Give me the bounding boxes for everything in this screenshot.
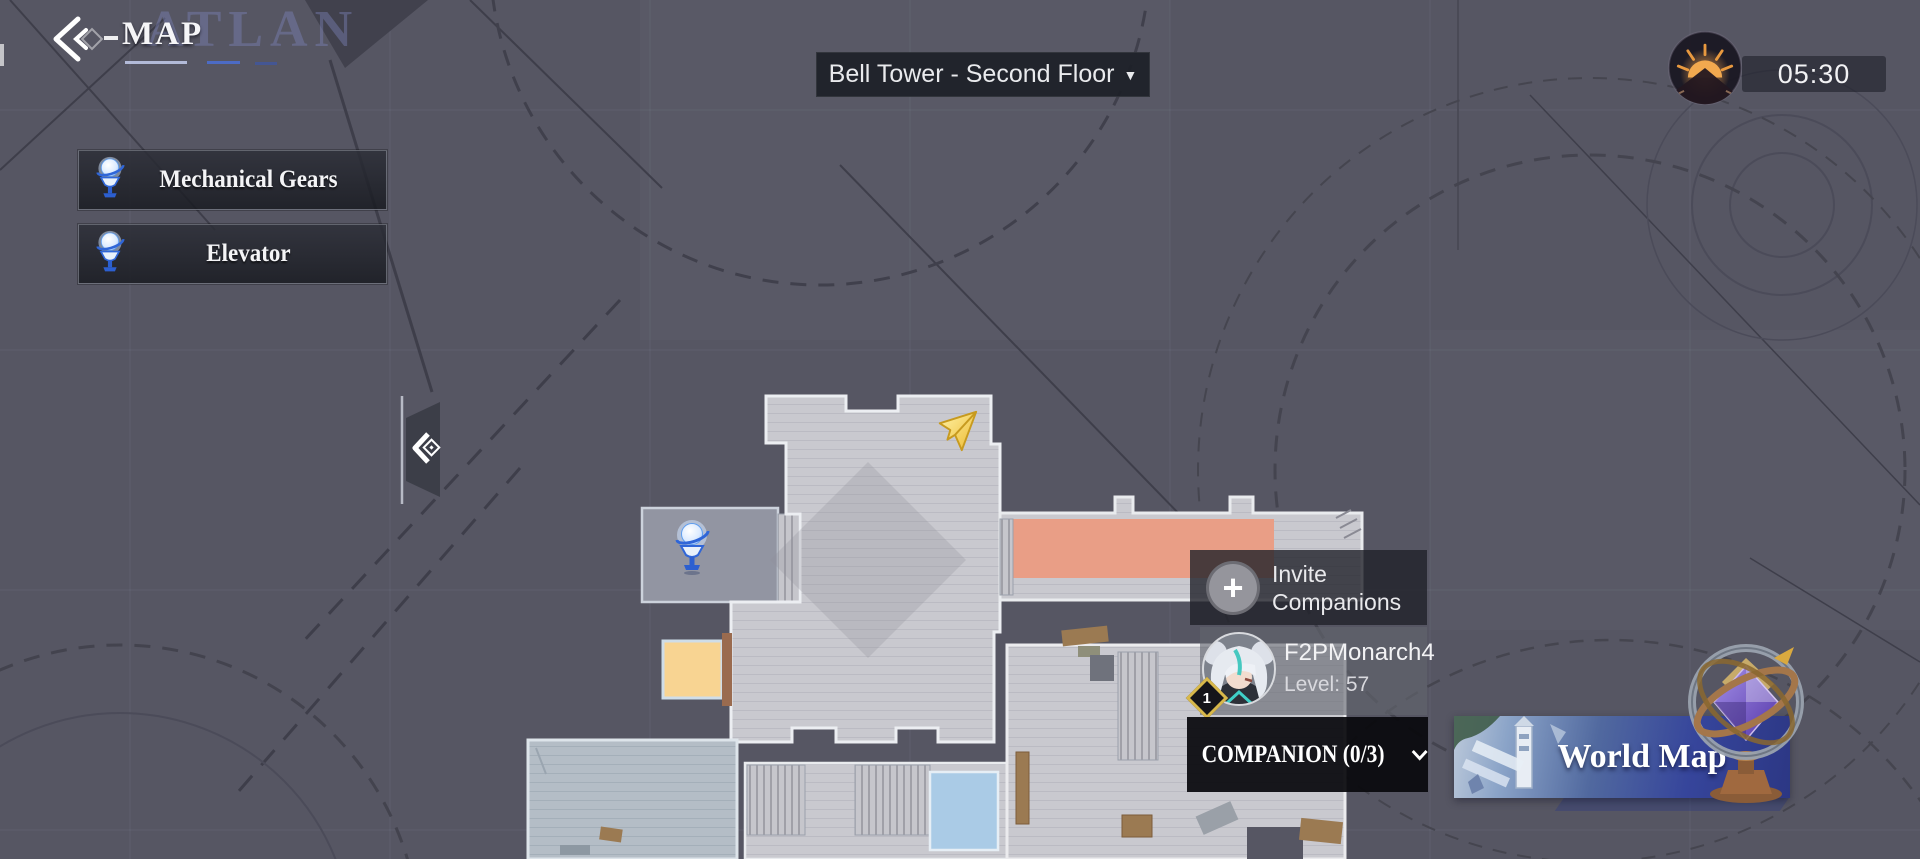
quick-travel-elevator[interactable]: Elevator [78, 224, 387, 284]
quick-travel-label: Elevator [175, 240, 291, 268]
invite-companions-button[interactable]: + Invite Companions [1190, 550, 1427, 625]
floor-selector-dropdown[interactable]: Bell Tower - Second Floor ▼ [816, 52, 1150, 97]
armillary-sphere-icon [1676, 622, 1816, 807]
chevron-down-icon [1411, 746, 1428, 764]
sunrise-icon [1665, 28, 1745, 108]
sidebar-collapse-handle[interactable] [398, 394, 444, 506]
clock-time: 05:30 [1778, 59, 1851, 90]
stairs [747, 765, 805, 835]
back-button[interactable] [42, 10, 112, 68]
teleport-waypoint-icon [93, 230, 127, 278]
pool [930, 772, 998, 850]
chevron-left-icon [42, 10, 112, 68]
page-title: MAP [122, 16, 203, 53]
bottom-left-room [528, 740, 737, 859]
player-name: F2PMonarch4 [1284, 639, 1435, 667]
quick-travel-mechanical-gears[interactable]: Mechanical Gears [78, 150, 387, 210]
map-screen: ATLAN MAP Bell Tower - Second Floor ▼ [0, 0, 1920, 859]
plus-icon: + [1206, 561, 1260, 615]
screen-edge-mark [0, 44, 4, 66]
stairs [855, 765, 930, 835]
quick-travel-label: Mechanical Gears [128, 166, 337, 194]
invite-companions-label: Invite Companions [1272, 560, 1422, 616]
stairs [1118, 652, 1158, 760]
player-position-arrow [934, 406, 980, 456]
chevron-down-icon: ▼ [1123, 67, 1137, 83]
player-level: Level: 57 [1284, 673, 1369, 697]
teleport-waypoint-icon [93, 156, 127, 204]
title-dash [104, 36, 118, 40]
companion-expander[interactable]: COMPANION (0/3) [1187, 717, 1428, 792]
title-underline [207, 61, 240, 64]
teleport-waypoint[interactable] [672, 520, 712, 578]
title-underline [255, 62, 277, 65]
game-clock: 05:30 [1742, 56, 1886, 92]
time-of-day-widget [1665, 28, 1745, 108]
yellow-room [663, 641, 722, 698]
floor-selector-label: Bell Tower - Second Floor [829, 60, 1115, 89]
player-entry[interactable]: 1 F2PMonarch4 Level: 57 [1200, 627, 1427, 715]
companion-count-label: COMPANION (0/3) [1187, 741, 1385, 769]
title-underline [125, 61, 187, 64]
